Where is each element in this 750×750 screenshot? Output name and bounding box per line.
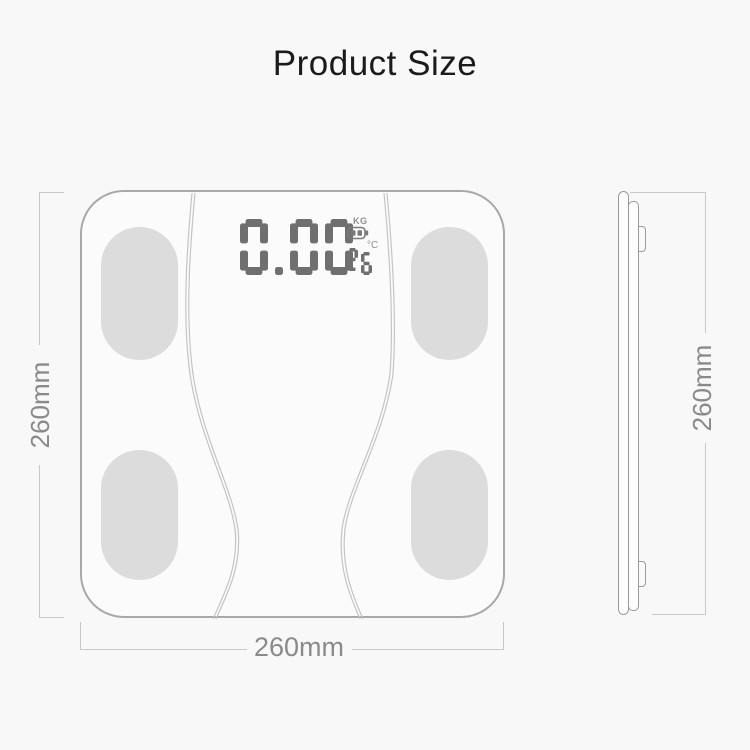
side-view-body-layer	[628, 201, 639, 611]
product-size-diagram: Product Size KG	[0, 0, 750, 750]
lcd-weight-unit: KG	[353, 216, 368, 226]
dimension-line	[705, 192, 706, 333]
dimension-tick	[80, 622, 81, 650]
dimension-line	[705, 443, 706, 615]
battery-icon	[347, 226, 369, 245]
dimension-line	[80, 649, 247, 650]
dimension-line	[39, 192, 40, 345]
top-view-width-label: 260mm	[246, 632, 352, 663]
dimension-line	[630, 192, 706, 193]
dimension-line	[39, 465, 40, 618]
page-title: Product Size	[0, 44, 750, 84]
dimension-tick	[39, 192, 64, 193]
dimension-tick	[39, 617, 64, 618]
dimension-line	[352, 649, 504, 650]
top-view-height-label: 260mm	[27, 360, 53, 450]
dimension-tick	[503, 622, 504, 650]
scale-top-view: KG °C	[80, 190, 505, 618]
side-view-height-label: 260mm	[689, 343, 715, 433]
lcd-temperature-value	[347, 248, 373, 281]
lcd-display: KG °C	[240, 217, 400, 281]
dimension-line	[652, 614, 706, 615]
lcd-weight-value	[240, 219, 354, 281]
